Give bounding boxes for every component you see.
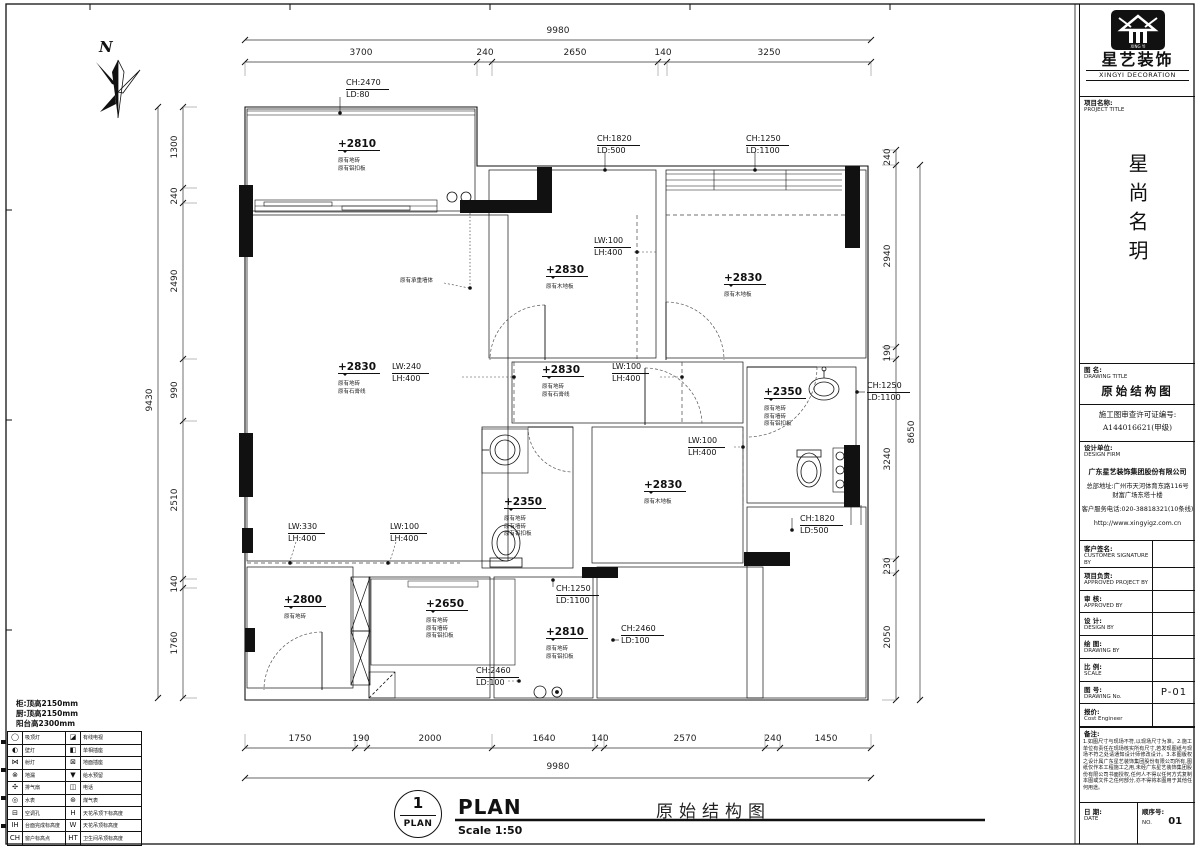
code-ch1820: CH:1820 LD:500 (800, 514, 843, 536)
code-lw100: LW:100 LH:400 (594, 236, 631, 258)
code-line: CH:1820 (597, 134, 640, 146)
legend-label: 给水预留 (81, 770, 141, 782)
finish-note: 原有地砖 原有石膏线 (542, 384, 570, 399)
legend-symbol: IH (8, 820, 23, 832)
row-label-cn: 图 号: (1084, 684, 1152, 694)
dim-top-seg: 240 (476, 48, 493, 58)
legend-symbol: ◐ (8, 745, 23, 757)
dim-right-total: 8650 (907, 421, 917, 444)
plan-title-cn: 原始结构图 (656, 797, 771, 822)
signature-row: 图 号: DRAWING No. P-01 (1080, 682, 1195, 705)
code-line: CH:1250 (556, 584, 599, 596)
dim-right-seg: 240 (883, 148, 893, 165)
design-firm-label-en: DESIGN FIRM (1080, 452, 1195, 459)
legend-label: 煤气表 (81, 795, 141, 807)
north-arrow-icon (96, 60, 140, 118)
row-label-cn: 比 例: (1084, 661, 1152, 671)
website: http://www.xingyigz.com.cn (1080, 519, 1195, 528)
finish-line: 原有石膏线 (338, 389, 366, 397)
legend-row: IH 台面完成标高度 W 天花吊顶标高度 (8, 820, 141, 833)
basin2-icon (809, 367, 839, 400)
washer-drain-icons (534, 686, 562, 698)
code-ch1250: CH:1250 LD:1100 (746, 134, 789, 156)
signature-row: 客户签名: CUSTOMER SIGNATURE BY (1080, 541, 1195, 568)
code-line: LW:240 (392, 362, 429, 374)
legend-symbol: ▼ (66, 770, 81, 782)
legend-label: 台面完成标高度 (23, 820, 66, 832)
basin-icon (482, 429, 528, 473)
finish-line: 原有木地板 (724, 292, 752, 300)
floorplan-drawing (0, 0, 1200, 848)
design-firm-label-cn: 设计单位: (1080, 442, 1195, 452)
dim-bottom-seg: 140 (591, 734, 608, 744)
code-line: LH:400 (688, 448, 716, 457)
row-label-cn: 项目负责: (1084, 570, 1152, 580)
north-label: N (99, 38, 113, 56)
legend-label: 壁灯 (23, 745, 66, 757)
finish-line: 原有地砖 (504, 516, 532, 524)
legend-label: 天花吊顶下标高度 (81, 807, 141, 819)
code-line: CH:1250 (746, 134, 789, 146)
finish-line: 原有铝扣板 (338, 166, 366, 174)
dim-top-seg: 2650 (564, 48, 587, 58)
legend-label: 空调孔 (23, 807, 66, 819)
code-line: LH:400 (288, 534, 316, 543)
plan-scale: Scale 1:50 (458, 824, 522, 837)
legend-label: 射灯 (23, 757, 66, 769)
dim-bottom-seg: 2000 (419, 734, 442, 744)
legend-symbol: CH (8, 832, 23, 845)
legend-row: CH 窗户标高点 HT 卫生间吊顶标高度 (8, 832, 141, 845)
legend-symbol: ⊠ (66, 757, 81, 769)
level-marker: +2350 (504, 496, 546, 509)
finish-note: 原有地砖 原有墙砖 原有铝扣板 (764, 406, 792, 429)
company-address-1: 总部地址:广州市天河体育东路116号 (1080, 482, 1195, 491)
legend-note-line: 柜:顶高2150mm (16, 699, 78, 709)
dim-top-total: 9980 (547, 26, 570, 36)
legend-symbol: ⋈ (8, 757, 23, 769)
legend-label: 电话 (81, 782, 141, 794)
dim-bottom-seg: 190 (352, 734, 369, 744)
row-label-en: CUSTOMER SIGNATURE BY (1084, 553, 1152, 567)
finish-line: 原有铝扣板 (764, 421, 792, 429)
brand-name-cn: 星艺装饰 (1080, 51, 1195, 69)
finish-note: 原有木地板 (724, 292, 752, 300)
dim-left-seg: 1760 (170, 632, 180, 655)
code-line: LD:100 (476, 678, 505, 687)
company-name: 广东星艺装饰集团股份有限公司 (1080, 467, 1195, 477)
level-marker: +2350 (764, 386, 806, 399)
sequence-cell: 顺序号: NO. 01 (1137, 803, 1195, 844)
signature-row: 设 计: DESIGN BY (1080, 613, 1195, 636)
code-lw100: LW:100 LH:400 (688, 436, 725, 458)
code-ch1250: CH:1250 LD:1100 (867, 381, 910, 403)
dim-right-seg: 2940 (883, 245, 893, 268)
code-line: LD:1100 (746, 146, 780, 155)
plan-number-bubble: 1 PLAN (394, 790, 442, 838)
finish-line: 原有地砖 (338, 381, 366, 389)
finish-note: 原有木地板 (546, 284, 574, 292)
dim-right-seg: 2050 (883, 626, 893, 649)
legend-symbol: ⊛ (66, 795, 81, 807)
code-lw330: LW:330 LH:400 (288, 522, 325, 544)
legend-symbol: ◧ (66, 745, 81, 757)
code-line: LH:400 (392, 374, 420, 383)
legend-table: ◯ 吸顶灯 ◪ 有线电视 ◐ 壁灯 ◧ 单相插座 ⋈ 射灯 ⊠ 地面插座 ⊗ 地… (7, 731, 142, 846)
code-line: LH:400 (390, 534, 418, 543)
finish-line: 原有地砖 (546, 646, 574, 654)
code-line: CH:1250 (867, 381, 910, 393)
windows (247, 111, 861, 525)
level-marker: +2810 (546, 626, 588, 639)
finish-line: 原有木地板 (546, 284, 574, 292)
svg-text:XING YI: XING YI (1130, 44, 1145, 49)
row-value (1152, 659, 1195, 681)
drawing-sheet: N 9980 3700 240 2650 140 3250 1750 190 2… (0, 0, 1200, 848)
date-label-en: DATE (1084, 816, 1137, 823)
brand-section: XING YI 星艺装饰 XINGYI DECORATION (1080, 4, 1195, 97)
notes-text: 1.如图尺寸与现场不符,以现场尺寸为准。2.施工单位有责任在现场核实所有尺寸,若… (1080, 738, 1195, 792)
legend-symbol: ⊗ (8, 770, 23, 782)
row-value (1152, 541, 1195, 567)
level-marker: +2810 (338, 138, 380, 151)
row-value (1152, 636, 1195, 658)
code-line: CH:2460 (476, 666, 519, 678)
date-cell: 日 期: DATE (1080, 803, 1137, 844)
level-marker: +2830 (542, 364, 584, 377)
row-label-en: APPROVED PROJECT BY (1084, 580, 1152, 587)
dim-left-seg: 1300 (170, 136, 180, 159)
bearing-wall-note: 原有承重墙体 (400, 276, 433, 284)
code-line: LH:400 (594, 248, 622, 257)
dim-bottom-seg: 2570 (674, 734, 697, 744)
drawing-title: 原始结构图 (1080, 383, 1195, 399)
row-label-en: SCALE (1084, 671, 1152, 678)
legend-notes: 柜:顶高2150mm 厨:顶高2150mm 阳台高2300mm (16, 699, 78, 729)
plan-bubble-label: PLAN (395, 816, 441, 833)
dim-right-seg: 3240 (883, 448, 893, 471)
finish-line: 原有木地板 (644, 499, 672, 507)
title-block: XING YI 星艺装饰 XINGYI DECORATION 项目名称: PRO… (1079, 4, 1195, 844)
plan-title-en: PLAN (458, 795, 522, 819)
code-line: LD:500 (597, 146, 626, 155)
code-line: LD:500 (800, 526, 829, 535)
code-line: LD:80 (346, 90, 370, 99)
project-section: 项目名称: PROJECT TITLE 星尚名玥 (1080, 97, 1195, 364)
signature-row: 绘 图: DRAWING BY (1080, 636, 1195, 659)
row-label-en: DRAWING BY (1084, 648, 1152, 655)
finish-note: 原有地砖 原有石膏线 (338, 381, 366, 396)
code-line: LD:100 (621, 636, 650, 645)
level-marker: +2830 (338, 361, 380, 374)
finish-note: 原有木地板 (644, 499, 672, 507)
notes-label: 备注: (1080, 728, 1195, 738)
code-ch2460: CH:2460 LD:100 (621, 624, 664, 646)
service-phone: 客户服务电话:020-38818321(10条线) (1080, 505, 1195, 514)
level-marker: +2830 (546, 264, 588, 277)
drawing-number: P-01 (1152, 682, 1195, 704)
company-address-2: 财富广场东塔十楼 (1080, 491, 1195, 500)
finish-line: 原有地砖 (338, 158, 366, 166)
code-line: CH:1820 (800, 514, 843, 526)
code-line: CH:2470 (346, 78, 389, 90)
seq-label-cn: 顺序号: (1142, 806, 1195, 816)
legend-symbol: ⊟ (8, 807, 23, 819)
code-line: LW:100 (612, 362, 649, 374)
level-marker: +2800 (284, 594, 326, 607)
finish-note: 原有地砖 原有铝扣板 (338, 158, 366, 173)
leader-dashes (290, 252, 742, 681)
project-name: 星尚名玥 (1123, 153, 1152, 269)
outer-walls (245, 107, 868, 700)
legend-label: 单相插座 (81, 745, 141, 757)
row-value (1152, 591, 1195, 613)
code-ch2460: CH:2460 LD:100 (476, 666, 519, 688)
finish-line: 原有地砖 (284, 614, 306, 622)
code-line: LW:330 (288, 522, 325, 534)
legend-row: ◎ 水表 ⊛ 煤气表 (8, 795, 141, 808)
finish-note: 原有地砖 原有铝扣板 (546, 646, 574, 661)
dim-bottom-seg: 240 (764, 734, 781, 744)
dim-left-seg: 2510 (170, 489, 180, 512)
dim-top-seg: 3250 (758, 48, 781, 58)
sheet-frame (6, 4, 1194, 844)
code-ch2470: CH:2470 LD:80 (346, 78, 389, 100)
dim-bottom-seg: 1640 (533, 734, 556, 744)
legend-label: 地漏 (23, 770, 66, 782)
row-label-cn: 审 核: (1084, 593, 1152, 603)
legend-label: 有线电视 (81, 732, 141, 744)
legend-symbol: HT (66, 832, 81, 845)
row-label-en: Cost Engineer (1084, 716, 1152, 723)
finish-line: 原有铝扣板 (426, 633, 454, 641)
toilet2-icon (797, 450, 821, 487)
kitchen-sink-icon (369, 672, 395, 698)
date-label-cn: 日 期: (1084, 806, 1137, 816)
code-ch1250: CH:1250 LD:1100 (556, 584, 599, 606)
legend-symbol: W (66, 820, 81, 832)
code-line: LD:1100 (867, 393, 901, 402)
legend-label: 排气扇 (23, 782, 66, 794)
permit-line2: A144016621(甲级) (1080, 421, 1195, 434)
legend-symbol: ◯ (8, 732, 23, 744)
legend-row: ◐ 壁灯 ◧ 单相插座 (8, 745, 141, 758)
drawing-label-cn: 图 名: (1080, 364, 1195, 374)
finish-line: 原有地砖 (542, 384, 570, 392)
plan-number: 1 (400, 791, 436, 816)
code-ch1820: CH:1820 LD:500 (597, 134, 640, 156)
project-label-en: PROJECT TITLE (1080, 107, 1195, 114)
legend-row: ⋈ 射灯 ⊠ 地面插座 (8, 757, 141, 770)
shaft-hatch (351, 577, 370, 685)
dim-right-seg: 190 (883, 344, 893, 361)
signature-row: 比 例: SCALE (1080, 659, 1195, 682)
legend-label: 地面插座 (81, 757, 141, 769)
seq-label-en: NO. (1142, 820, 1152, 826)
legend-row: ⊟ 空调孔 H 天花吊顶下标高度 (8, 807, 141, 820)
legend-label: 吸顶灯 (23, 732, 66, 744)
legend-row: ◯ 吸顶灯 ◪ 有线电视 (8, 732, 141, 745)
row-value (1152, 704, 1195, 726)
row-label-en: DRAWING No. (1084, 694, 1152, 701)
code-line: LH:400 (612, 374, 640, 383)
row-label-cn: 报价: (1084, 706, 1152, 716)
finish-line: 原有墙砖 (426, 626, 454, 634)
level-marker: +2830 (644, 479, 686, 492)
row-label-cn: 绘 图: (1084, 638, 1152, 648)
finish-line: 原有地砖 (426, 618, 454, 626)
dim-top-seg: 3700 (350, 48, 373, 58)
xingyi-logo-icon: XING YI (1111, 10, 1165, 50)
code-line: LW:100 (594, 236, 631, 248)
code-lw100: LW:100 LH:400 (612, 362, 649, 384)
legend-symbol: ◎ (8, 795, 23, 807)
finish-line: 原有地砖 (764, 406, 792, 414)
design-firm-section: 设计单位: DESIGN FIRM 广东星艺装饰集团股份有限公司 总部地址:广州… (1080, 442, 1195, 541)
dim-bottom-seg: 1750 (289, 734, 312, 744)
frame-registration-marks (1, 740, 6, 828)
code-lw100: LW:100 LH:400 (390, 522, 427, 544)
dim-bottom-total: 9980 (547, 762, 570, 772)
dim-left-seg: 140 (170, 575, 180, 592)
row-value (1152, 568, 1195, 590)
legend-symbol: ✣ (8, 782, 23, 794)
legend-symbol: ◫ (66, 782, 81, 794)
row-label-en: DESIGN BY (1084, 625, 1152, 632)
level-marker: +2830 (724, 272, 766, 285)
permit-section: 施工图审查许可证编号: A144016621(甲级) (1080, 405, 1195, 442)
legend-symbol: H (66, 807, 81, 819)
legend-row: ✣ 排气扇 ◫ 电话 (8, 782, 141, 795)
row-label-cn: 设 计: (1084, 615, 1152, 625)
legend-note-line: 阳台高2300mm (16, 719, 78, 729)
row-value (1152, 613, 1195, 635)
finish-note: 原有地砖 原有墙砖 原有铝扣板 (426, 618, 454, 641)
row-label-cn: 客户签名: (1084, 543, 1152, 553)
date-row: 日 期: DATE 顺序号: NO. 01 (1080, 803, 1195, 844)
signature-row: 审 核: APPROVED BY (1080, 591, 1195, 614)
legend-note-line: 厨:顶高2150mm (16, 709, 78, 719)
code-line: LD:1100 (556, 596, 590, 605)
finish-line: 原有石膏线 (542, 392, 570, 400)
dim-left-seg: 2490 (170, 270, 180, 293)
finish-line: 原有铝扣板 (504, 531, 532, 539)
legend-label: 窗户标高点 (23, 832, 66, 845)
signature-rows: 客户签名: CUSTOMER SIGNATURE BY 项目负责: APPROV… (1080, 541, 1195, 727)
legend-row: ⊗ 地漏 ▼ 给水预留 (8, 770, 141, 783)
dim-left-seg: 990 (170, 381, 180, 398)
code-line: LW:100 (688, 436, 725, 448)
legend-label: 天花吊顶标高度 (81, 820, 141, 832)
code-lw240: LW:240 LH:400 (392, 362, 429, 384)
level-marker: +2650 (426, 598, 468, 611)
dim-bottom-seg: 1450 (815, 734, 838, 744)
notes-section: 备注: 1.如图尺寸与现场不符,以现场尺寸为准。2.施工单位有责任在现场核实所有… (1080, 727, 1195, 803)
signature-row: 项目负责: APPROVED PROJECT BY (1080, 568, 1195, 591)
project-label-cn: 项目名称: (1080, 97, 1195, 107)
row-label-en: APPROVED BY (1084, 603, 1152, 610)
dim-right-seg: 230 (883, 557, 893, 574)
finish-line: 原有墙砖 (764, 414, 792, 422)
drawing-label-en: DRAWING TITLE (1080, 374, 1195, 381)
dimension-lines (155, 37, 923, 781)
dim-top-seg: 140 (654, 48, 671, 58)
code-line: LW:100 (390, 522, 427, 534)
finish-note: 原有地砖 (284, 614, 306, 622)
permit-line1: 施工图审查许可证编号: (1080, 405, 1195, 421)
dim-left-total: 9430 (145, 389, 155, 412)
legend-label: 卫生间吊顶标高度 (81, 832, 141, 845)
finish-line: 原有铝扣板 (546, 654, 574, 662)
legend-symbol: ◪ (66, 732, 81, 744)
code-line: CH:2460 (621, 624, 664, 636)
finish-note: 原有地砖 原有墙砖 原有铝扣板 (504, 516, 532, 539)
legend-label: 水表 (23, 795, 66, 807)
drawing-title-section: 图 名: DRAWING TITLE 原始结构图 (1080, 364, 1195, 405)
finish-line: 原有墙砖 (504, 524, 532, 532)
brand-name-en: XINGYI DECORATION (1086, 70, 1189, 81)
sequence-number: 01 (1154, 816, 1182, 827)
signature-row: 报价: Cost Engineer (1080, 704, 1195, 727)
dim-left-seg: 240 (170, 187, 180, 204)
